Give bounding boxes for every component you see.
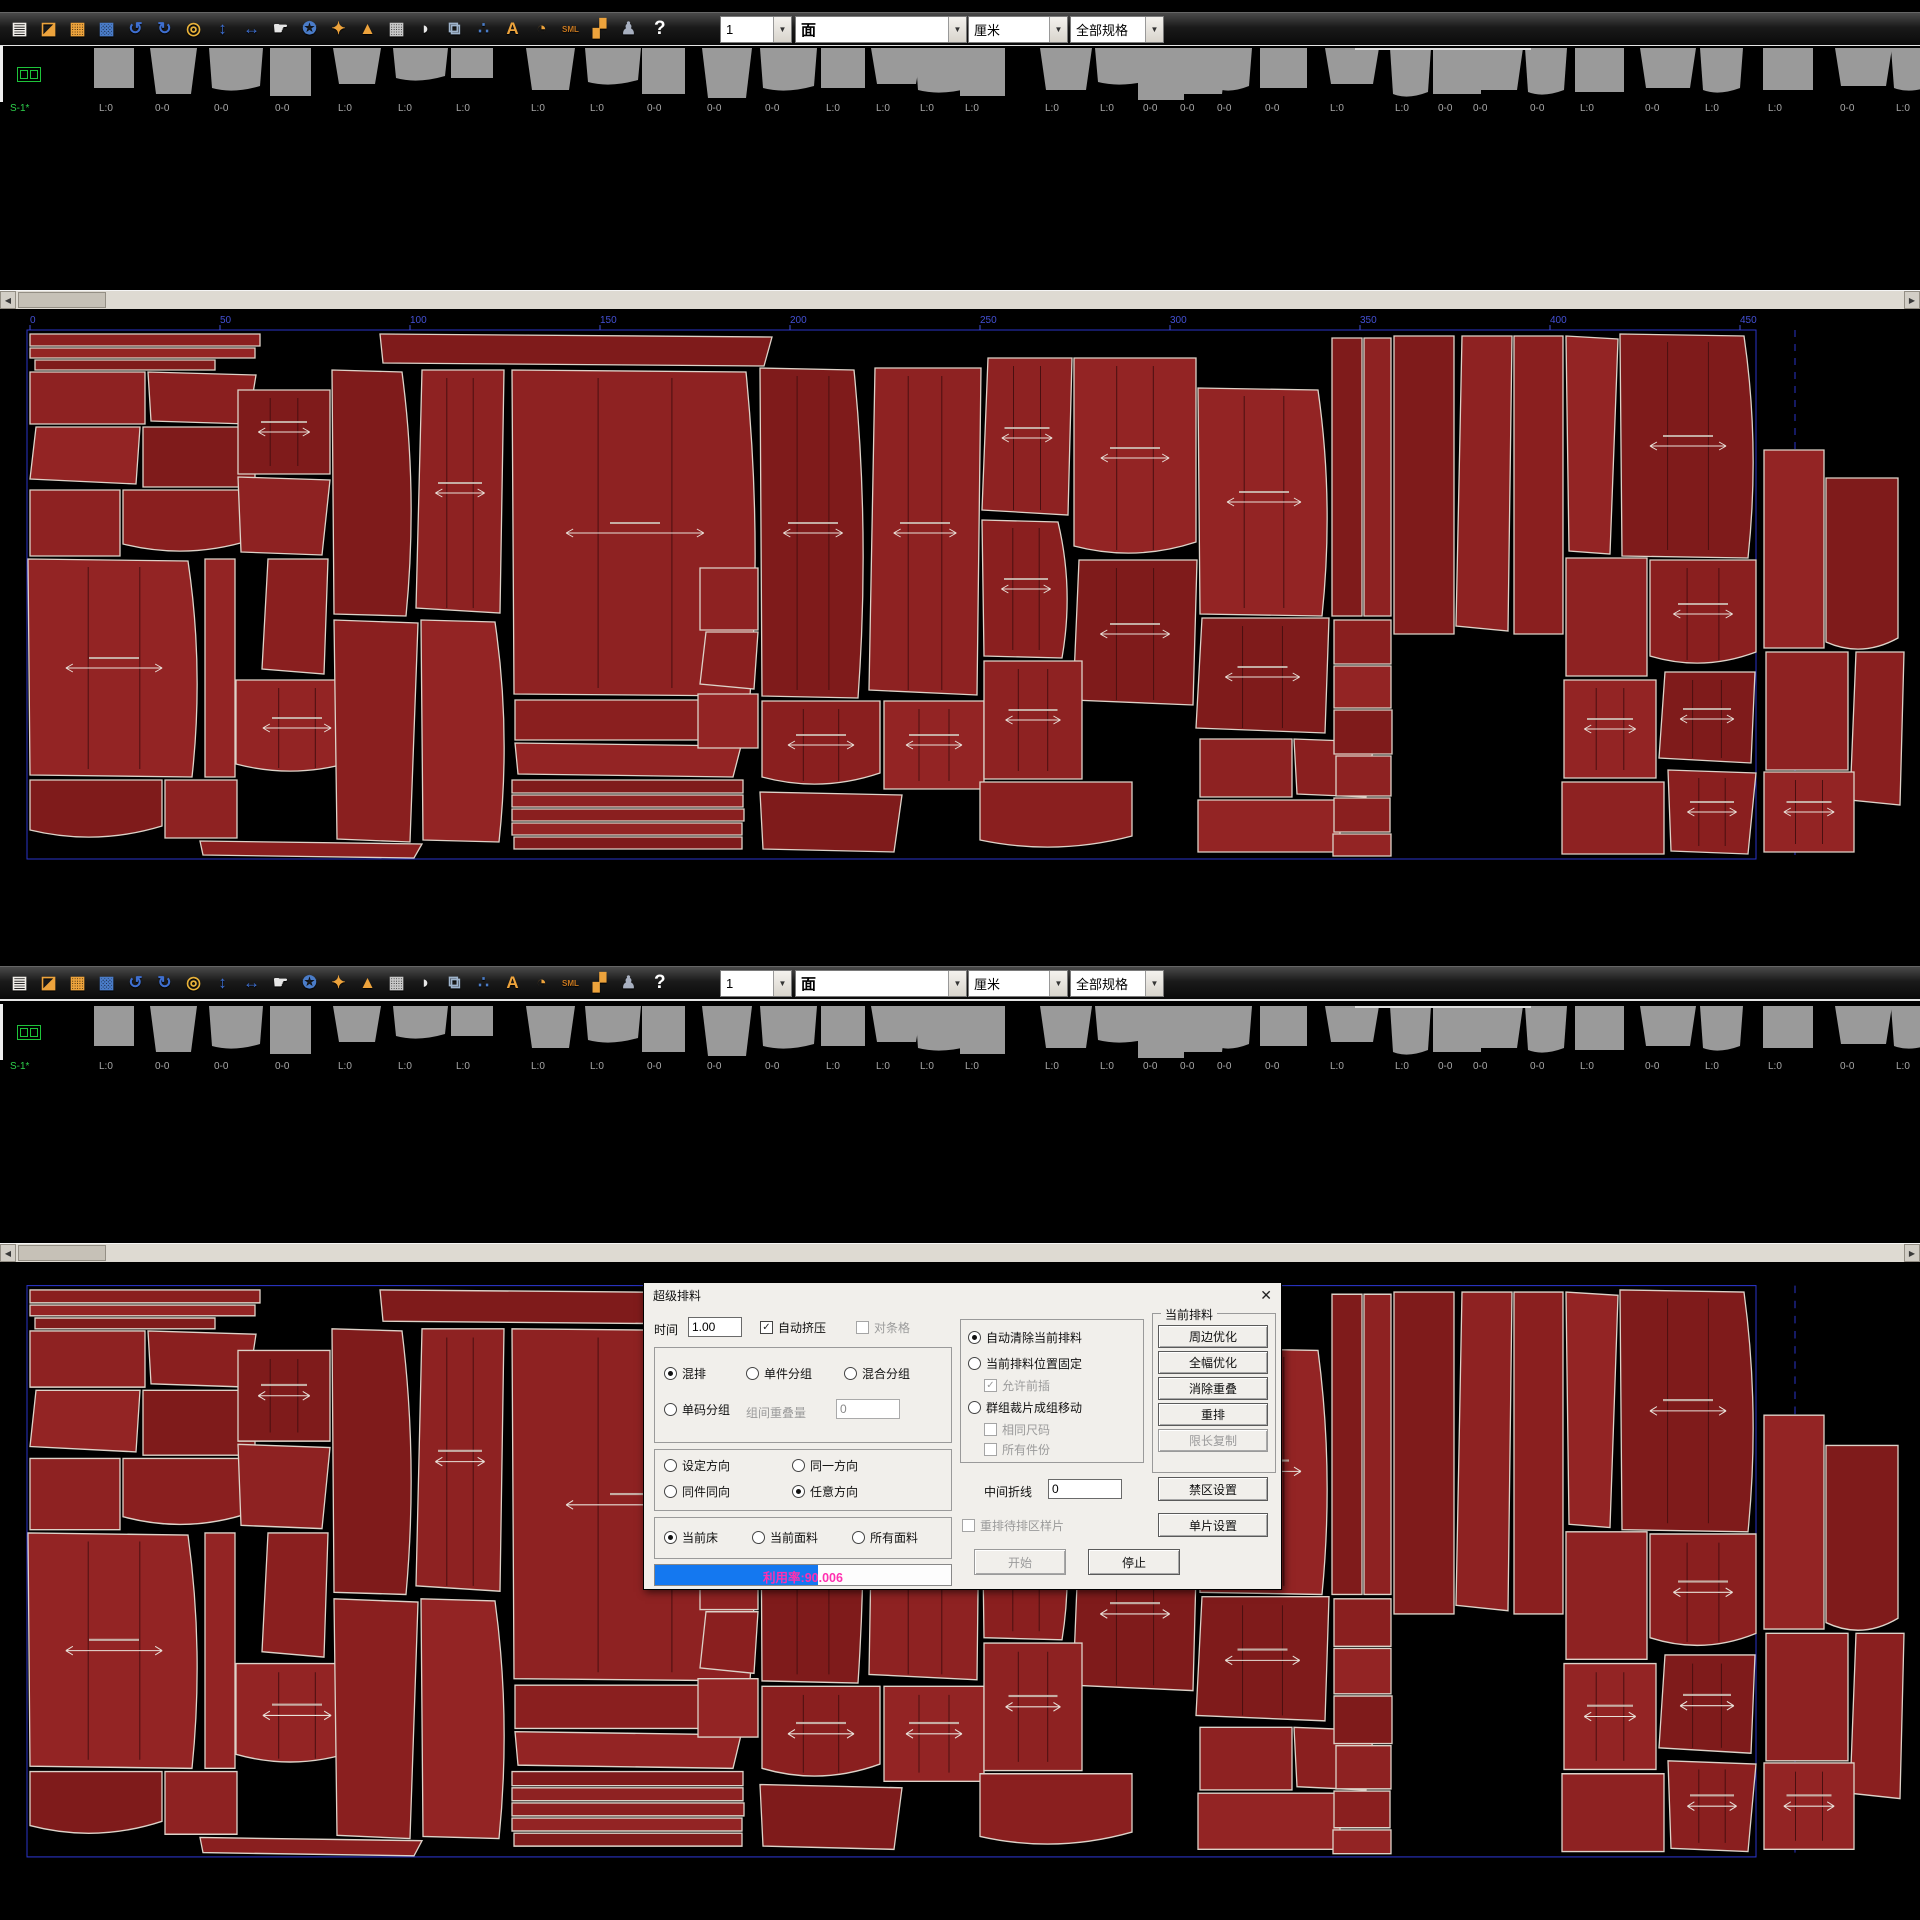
- fabric-combo[interactable]: 面 ▼: [795, 16, 967, 43]
- reel-icon[interactable]: ✪: [298, 17, 321, 41]
- reel-icon[interactable]: ✪: [298, 971, 321, 995]
- strip-piece[interactable]: [1390, 1006, 1431, 1055]
- pattern-piece[interactable]: [1764, 1415, 1824, 1629]
- ink-icon[interactable]: ◗: [414, 971, 437, 995]
- pattern-piece[interactable]: [1198, 800, 1340, 852]
- pattern-piece[interactable]: [1334, 1599, 1391, 1647]
- strip-piece[interactable]: [94, 48, 134, 88]
- pattern-piece[interactable]: [1566, 336, 1618, 554]
- current-fabric-label: 当前面料: [770, 1529, 818, 1546]
- pattern-piece[interactable]: [165, 1772, 237, 1835]
- pattern-piece[interactable]: [514, 1833, 742, 1846]
- pattern-piece[interactable]: [1334, 620, 1391, 664]
- pattern-piece[interactable]: [1332, 338, 1362, 616]
- pattern-piece[interactable]: [1364, 338, 1391, 616]
- strip-piece[interactable]: [1390, 48, 1431, 97]
- undo-icon[interactable]: ↺: [124, 17, 147, 41]
- full-optimize-button[interactable]: 全幅优化: [1158, 1351, 1268, 1374]
- pattern-piece[interactable]: [30, 427, 140, 484]
- copy-icon[interactable]: ⧉: [443, 971, 466, 995]
- pattern-piece[interactable]: [514, 837, 742, 849]
- strip-piece[interactable]: [333, 48, 381, 84]
- strip-piece[interactable]: [1468, 48, 1523, 90]
- fold-line-input[interactable]: [1048, 1479, 1122, 1499]
- pattern-piece[interactable]: [1074, 358, 1196, 553]
- pattern-piece[interactable]: [30, 780, 162, 837]
- new-document-icon[interactable]: ▤: [8, 971, 31, 995]
- set-direction-radio[interactable]: 设定方向: [664, 1457, 730, 1474]
- radio-selected-icon[interactable]: [664, 1367, 677, 1380]
- chevron-down-icon[interactable]: ▼: [773, 17, 791, 42]
- help-icon[interactable]: ?: [654, 972, 666, 994]
- close-icon[interactable]: ✕: [1260, 1287, 1272, 1304]
- radio-icon[interactable]: [792, 1459, 805, 1472]
- pattern-piece[interactable]: [1659, 672, 1755, 763]
- share-icon[interactable]: ∴: [472, 17, 495, 41]
- chevron-down-icon[interactable]: ▼: [948, 17, 966, 42]
- strip-piece[interactable]: [1325, 1006, 1379, 1042]
- pattern-piece[interactable]: [982, 358, 1072, 515]
- stop-button[interactable]: 停止: [1088, 1549, 1180, 1575]
- piece-annotation: [1587, 1705, 1633, 1707]
- strip-piece[interactable]: [1212, 48, 1252, 91]
- all-fabrics-radio[interactable]: 所有面料: [852, 1529, 918, 1546]
- strip-piece[interactable]: [1640, 1006, 1696, 1046]
- single-group-radio[interactable]: 单件分组: [746, 1365, 812, 1382]
- chevron-down-icon[interactable]: ▼: [1145, 17, 1163, 42]
- hand-icon[interactable]: ☛: [269, 971, 292, 995]
- piece-annotation: [438, 482, 482, 484]
- strip-label-row: S-1* L:00-00-00-0L:0L:0L:0L:0L:00-00-00-…: [0, 1061, 1920, 1075]
- piece-annotation: [1683, 708, 1731, 710]
- radio-selected-icon[interactable]: [664, 1531, 677, 1544]
- save-as-icon[interactable]: ▩: [95, 17, 118, 41]
- pattern-piece[interactable]: [1364, 1294, 1391, 1594]
- marker-icon[interactable]: ▦: [385, 17, 408, 41]
- unit-combo[interactable]: 厘米 ▼: [968, 970, 1068, 997]
- strip-piece[interactable]: [642, 48, 685, 94]
- user-icon[interactable]: ♟: [617, 17, 640, 41]
- group-icon[interactable]: ▞: [588, 971, 611, 995]
- strip-piece[interactable]: [1640, 48, 1696, 88]
- pattern-piece[interactable]: [1514, 336, 1563, 634]
- edge-optimize-button[interactable]: 周边优化: [1158, 1325, 1268, 1348]
- radio-selected-icon[interactable]: [968, 1331, 981, 1344]
- pattern-piece[interactable]: [760, 1785, 902, 1850]
- time-input[interactable]: [688, 1317, 742, 1337]
- pattern-piece[interactable]: [1850, 1633, 1904, 1798]
- marker-canvas-top[interactable]: 050100150200250300350400450: [0, 310, 1920, 862]
- current-fabric-radio[interactable]: 当前面料: [752, 1529, 818, 1546]
- strip-piece[interactable]: [871, 1006, 922, 1042]
- open-folder-icon[interactable]: ◪: [37, 17, 60, 41]
- pattern-piece[interactable]: [332, 1329, 411, 1595]
- radio-selected-icon[interactable]: [792, 1485, 805, 1498]
- pattern-piece[interactable]: [1200, 739, 1292, 797]
- limit-copy-button[interactable]: 限长复制: [1158, 1429, 1268, 1452]
- strip-piece[interactable]: [821, 48, 865, 88]
- strip-piece[interactable]: [94, 1006, 134, 1046]
- layer-combo[interactable]: 1 ▼: [720, 970, 792, 997]
- strip-piece[interactable]: [150, 1006, 197, 1052]
- strip-piece[interactable]: [393, 1006, 448, 1039]
- open-folder-icon[interactable]: ◪: [37, 971, 60, 995]
- strip-piece[interactable]: [1835, 1006, 1892, 1044]
- pattern-piece[interactable]: [238, 477, 330, 555]
- pattern-piece[interactable]: [416, 370, 504, 613]
- pattern-piece[interactable]: [700, 1612, 758, 1674]
- unit-combo[interactable]: 厘米 ▼: [968, 16, 1068, 43]
- redo-icon[interactable]: ↻: [153, 971, 176, 995]
- mixed-group-radio[interactable]: 混合分组: [844, 1365, 910, 1382]
- pattern-piece[interactable]: [1334, 710, 1392, 754]
- pattern-piece[interactable]: [512, 1788, 743, 1801]
- time-label: 时间: [654, 1321, 678, 1338]
- ruler-tick-label: 0: [30, 315, 36, 326]
- hand-icon[interactable]: ☛: [269, 17, 292, 41]
- layer-combo[interactable]: 1 ▼: [720, 16, 792, 43]
- pattern-piece[interactable]: [1073, 560, 1197, 705]
- pattern-piece[interactable]: [1336, 1746, 1391, 1789]
- pattern-piece[interactable]: [698, 694, 758, 748]
- pattern-piece[interactable]: [262, 559, 328, 674]
- strip-piece[interactable]: [642, 1006, 685, 1052]
- strip-piece[interactable]: [760, 1006, 817, 1049]
- pattern-piece[interactable]: [30, 490, 120, 556]
- chevron-down-icon[interactable]: ▼: [1049, 971, 1067, 996]
- scroll-left-icon[interactable]: ◀: [0, 291, 16, 309]
- pattern-piece[interactable]: [512, 1772, 743, 1786]
- strip-piece[interactable]: [1700, 1006, 1743, 1051]
- scrollbar-thumb[interactable]: [18, 292, 106, 308]
- chevron-down-icon[interactable]: ▼: [1049, 17, 1067, 42]
- pattern-piece[interactable]: [1332, 1294, 1362, 1594]
- pattern-piece[interactable]: [334, 620, 418, 842]
- nest-icon[interactable]: ✦: [327, 971, 350, 995]
- pattern-piece[interactable]: [332, 370, 411, 616]
- nest-icon[interactable]: ✦: [327, 17, 350, 41]
- pattern-piece[interactable]: [334, 1599, 418, 1839]
- dialog-titlebar[interactable]: 超级排料 ✕: [644, 1283, 1281, 1307]
- share-icon[interactable]: ∴: [472, 971, 495, 995]
- piece-count-label: 0-0: [155, 1061, 169, 1072]
- pattern-piece[interactable]: [512, 823, 742, 835]
- pattern-piece[interactable]: [1826, 478, 1898, 649]
- chevron-down-icon[interactable]: ▼: [1145, 971, 1163, 996]
- scroll-left-icon[interactable]: ◀: [0, 1244, 16, 1262]
- forbid-zone-button[interactable]: 禁区设置: [1158, 1477, 1268, 1501]
- group-move-radio[interactable]: 群组裁片成组移动: [968, 1399, 1082, 1416]
- pattern-piece[interactable]: [30, 1290, 260, 1303]
- strip-piece[interactable]: [1763, 48, 1813, 90]
- pattern-piece[interactable]: [1659, 1655, 1755, 1753]
- pattern-piece[interactable]: [1826, 1445, 1898, 1630]
- pattern-piece[interactable]: [200, 841, 422, 858]
- pattern-piece[interactable]: [1394, 336, 1454, 634]
- horizontal-scrollbar[interactable]: ◀ ▶: [0, 290, 1920, 309]
- radio-icon[interactable]: [844, 1367, 857, 1380]
- same-piece-direction-label: 同件同向: [682, 1483, 730, 1500]
- strip-piece[interactable]: [1325, 48, 1379, 84]
- pattern-piece[interactable]: [869, 368, 981, 695]
- strip-piece[interactable]: [1763, 1006, 1813, 1048]
- remove-overlap-button[interactable]: 消除重叠: [1158, 1377, 1268, 1400]
- piece-annotation: [438, 1450, 482, 1452]
- strip-piece[interactable]: [1835, 48, 1892, 86]
- piece-count-label: 0-0: [1473, 1061, 1487, 1072]
- horizontal-scrollbar[interactable]: ◀ ▶: [0, 1243, 1920, 1262]
- mix-radio[interactable]: 混排: [664, 1365, 706, 1382]
- sheet-grid-icon[interactable]: [17, 67, 41, 82]
- fit-vertical-icon[interactable]: ↕: [211, 971, 234, 995]
- pattern-piece[interactable]: [200, 1837, 422, 1855]
- pattern-piece[interactable]: [1394, 1292, 1454, 1614]
- strip-piece[interactable]: [526, 1006, 575, 1048]
- marker-icon[interactable]: ▦: [385, 971, 408, 995]
- strip-piece[interactable]: [1525, 1006, 1567, 1053]
- pattern-piece[interactable]: [1456, 1292, 1512, 1611]
- strip-rule-line: [1355, 1006, 1531, 1008]
- pattern-piece[interactable]: [30, 372, 145, 424]
- help-icon[interactable]: ?: [654, 18, 666, 40]
- radio-icon[interactable]: [664, 1485, 677, 1498]
- strip-piece[interactable]: [451, 48, 493, 78]
- pattern-piece[interactable]: [1200, 1727, 1292, 1790]
- chevron-down-icon[interactable]: ▼: [948, 971, 966, 996]
- auto-clear-radio[interactable]: 自动清除当前排料: [968, 1329, 1082, 1346]
- strip-piece[interactable]: [702, 48, 752, 98]
- strip-piece[interactable]: [1575, 1006, 1624, 1050]
- radio-icon[interactable]: [664, 1459, 677, 1472]
- chevron-down-icon[interactable]: ▼: [773, 971, 791, 996]
- pattern-piece[interactable]: [35, 360, 215, 370]
- pattern-piece[interactable]: [421, 1599, 504, 1839]
- fabric-combo[interactable]: 面 ▼: [795, 970, 967, 997]
- stripe-match-checkbox: 对条格: [856, 1319, 910, 1336]
- strip-piece[interactable]: [209, 48, 263, 91]
- strip-piece[interactable]: [1525, 48, 1567, 95]
- fixed-position-radio[interactable]: 当前排料位置固定: [968, 1355, 1082, 1372]
- group-icon[interactable]: ▞: [588, 17, 611, 41]
- strip-piece[interactable]: [1260, 1006, 1307, 1046]
- size-combo[interactable]: 全部规格 ▼: [1070, 970, 1164, 997]
- fit-horizontal-icon[interactable]: ↔: [240, 17, 263, 41]
- same-direction-radio[interactable]: 同一方向: [792, 1457, 858, 1474]
- pattern-piece[interactable]: [1196, 1597, 1329, 1721]
- zoom-icon[interactable]: ◎: [182, 971, 205, 995]
- piece-count-label: L:0: [590, 103, 604, 114]
- radio-icon[interactable]: [852, 1531, 865, 1544]
- strip-piece[interactable]: [270, 1006, 311, 1054]
- piece-count-label: L:0: [99, 1061, 113, 1072]
- pattern-piece[interactable]: [1334, 798, 1390, 832]
- pattern-piece[interactable]: [1456, 336, 1512, 631]
- strip-piece[interactable]: [333, 1006, 381, 1042]
- pattern-piece[interactable]: [1562, 782, 1664, 854]
- pattern-piece[interactable]: [1562, 1774, 1664, 1852]
- strip-piece[interactable]: [1212, 1006, 1252, 1049]
- same-piece-direction-radio[interactable]: 同件同向: [664, 1483, 730, 1500]
- zoom-icon[interactable]: ◎: [182, 17, 205, 41]
- strip-piece[interactable]: [1891, 1006, 1920, 1049]
- strip-piece[interactable]: [585, 48, 641, 85]
- pattern-piece[interactable]: [1333, 834, 1391, 856]
- pattern-piece[interactable]: [1850, 652, 1904, 805]
- pattern-piece[interactable]: [1764, 450, 1824, 648]
- piece-count-label: 0-0: [1530, 1061, 1544, 1072]
- single-size-radio[interactable]: 单码分组: [664, 1401, 730, 1418]
- strip-piece[interactable]: [1700, 48, 1743, 93]
- export-icon[interactable]: ▲: [356, 971, 379, 995]
- text-icon[interactable]: A: [501, 971, 524, 995]
- strip-piece[interactable]: [150, 48, 197, 94]
- piece-setting-button[interactable]: 单片设置: [1158, 1513, 1268, 1537]
- pattern-piece[interactable]: [35, 1318, 215, 1329]
- strip-piece[interactable]: [702, 1006, 752, 1056]
- user-icon[interactable]: ♟: [617, 971, 640, 995]
- pie-chart-icon[interactable]: ◔: [530, 17, 553, 41]
- pattern-piece[interactable]: [205, 559, 235, 777]
- checkbox-checked-icon[interactable]: ✓: [760, 1321, 773, 1334]
- pattern-piece[interactable]: [762, 701, 880, 784]
- pattern-piece[interactable]: [760, 792, 902, 852]
- pattern-piece[interactable]: [421, 620, 504, 842]
- strip-piece[interactable]: [393, 48, 448, 81]
- strip-piece[interactable]: [960, 48, 1005, 96]
- piece-count-label: L:0: [1395, 103, 1409, 114]
- export-icon[interactable]: ▲: [356, 17, 379, 41]
- pattern-piece[interactable]: [700, 632, 758, 689]
- radio-icon[interactable]: [752, 1531, 765, 1544]
- redo-icon[interactable]: ↻: [153, 17, 176, 41]
- pattern-piece[interactable]: [762, 1686, 880, 1776]
- pattern-piece[interactable]: [1650, 1534, 1756, 1645]
- pattern-piece[interactable]: [1334, 666, 1391, 708]
- strip-piece[interactable]: [526, 48, 575, 90]
- fit-horizontal-icon[interactable]: ↔: [240, 971, 263, 995]
- pattern-piece[interactable]: [262, 1533, 328, 1657]
- size-combo[interactable]: 全部规格 ▼: [1070, 16, 1164, 43]
- pattern-piece[interactable]: [1766, 652, 1848, 770]
- undo-icon[interactable]: ↺: [124, 971, 147, 995]
- fit-vertical-icon[interactable]: ↕: [211, 17, 234, 41]
- pattern-piece[interactable]: [1566, 1532, 1647, 1659]
- current-bed-radio[interactable]: 当前床: [664, 1529, 718, 1546]
- pattern-piece[interactable]: [1334, 1696, 1392, 1744]
- pattern-piece[interactable]: [1566, 558, 1647, 676]
- pattern-piece[interactable]: [512, 1803, 744, 1816]
- pattern-piece[interactable]: [30, 1390, 140, 1452]
- strip-piece[interactable]: [760, 48, 817, 91]
- sheet-grid-icon[interactable]: [17, 1025, 41, 1040]
- pattern-piece[interactable]: [980, 1774, 1132, 1844]
- pattern-piece[interactable]: [123, 490, 251, 551]
- pattern-piece[interactable]: [1198, 1793, 1340, 1849]
- copy-icon[interactable]: ⧉: [443, 17, 466, 41]
- pattern-piece[interactable]: [1514, 1292, 1563, 1614]
- strip-piece[interactable]: [960, 1006, 1005, 1054]
- save-icon[interactable]: ▦: [66, 17, 89, 41]
- ink-icon[interactable]: ◗: [414, 17, 437, 41]
- pattern-piece[interactable]: [416, 1329, 504, 1591]
- strip-piece[interactable]: [585, 1006, 641, 1043]
- pattern-piece[interactable]: [512, 795, 743, 807]
- pattern-piece[interactable]: [30, 1458, 120, 1529]
- strip-piece[interactable]: [821, 1006, 865, 1046]
- pattern-piece[interactable]: [30, 334, 260, 346]
- save-as-icon[interactable]: ▩: [95, 971, 118, 995]
- pattern-piece[interactable]: [123, 1458, 251, 1524]
- pattern-piece[interactable]: [30, 1305, 255, 1316]
- pattern-piece[interactable]: [205, 1533, 235, 1768]
- pattern-piece[interactable]: [1196, 618, 1329, 733]
- pattern-piece[interactable]: [700, 568, 758, 630]
- pattern-piece[interactable]: [1566, 1292, 1618, 1527]
- checkbox-icon: [856, 1321, 869, 1334]
- piece-count-label: L:0: [1705, 103, 1719, 114]
- pattern-piece[interactable]: [980, 782, 1132, 847]
- pie-chart-icon[interactable]: ◔: [530, 971, 553, 995]
- save-icon[interactable]: ▦: [66, 971, 89, 995]
- strip-piece[interactable]: [871, 48, 922, 84]
- pattern-piece[interactable]: [30, 1772, 162, 1834]
- scroll-right-icon[interactable]: ▶: [1904, 1244, 1920, 1262]
- strip-piece[interactable]: [451, 1006, 493, 1036]
- any-direction-radio[interactable]: 任意方向: [792, 1483, 858, 1500]
- pattern-piece[interactable]: [1333, 1830, 1391, 1854]
- auto-squeeze-checkbox[interactable]: ✓ 自动挤压: [760, 1319, 826, 1336]
- pattern-piece[interactable]: [512, 780, 743, 793]
- strip-piece[interactable]: [1040, 48, 1092, 90]
- strip-piece[interactable]: [209, 1006, 263, 1049]
- sml-sizes-icon[interactable]: SML: [559, 17, 582, 41]
- pattern-piece[interactable]: [698, 1679, 758, 1737]
- strip-piece[interactable]: [1468, 1006, 1523, 1048]
- pattern-piece[interactable]: [1334, 1648, 1391, 1693]
- scrollbar-thumb[interactable]: [18, 1245, 106, 1261]
- scroll-right-icon[interactable]: ▶: [1904, 291, 1920, 309]
- pattern-piece[interactable]: [512, 1818, 742, 1831]
- pattern-piece[interactable]: [512, 809, 744, 821]
- pattern-piece[interactable]: [30, 348, 255, 358]
- pattern-piece[interactable]: [1334, 1791, 1390, 1828]
- radio-icon[interactable]: [664, 1403, 677, 1416]
- strip-piece[interactable]: [1040, 1006, 1092, 1048]
- pattern-piece[interactable]: [30, 1331, 145, 1387]
- new-document-icon[interactable]: ▤: [8, 17, 31, 41]
- start-button[interactable]: 开始: [974, 1549, 1066, 1575]
- pattern-piece[interactable]: [1336, 756, 1391, 796]
- radio-icon[interactable]: [968, 1401, 981, 1414]
- radio-icon[interactable]: [968, 1357, 981, 1370]
- size-combo-value: 全部规格: [1071, 971, 1145, 996]
- piece-count-label: L:0: [531, 1061, 545, 1072]
- sml-sizes-icon[interactable]: SML: [559, 971, 582, 995]
- radio-icon[interactable]: [746, 1367, 759, 1380]
- strip-piece[interactable]: [1891, 48, 1920, 91]
- pattern-piece[interactable]: [238, 1444, 330, 1528]
- strip-piece[interactable]: [270, 48, 311, 96]
- pattern-piece[interactable]: [1766, 1633, 1848, 1760]
- strip-piece[interactable]: [1260, 48, 1307, 88]
- strip-piece[interactable]: [1575, 48, 1624, 92]
- piece-annotation: [909, 734, 959, 736]
- text-icon[interactable]: A: [501, 17, 524, 41]
- renest-button[interactable]: 重排: [1158, 1403, 1268, 1426]
- pattern-piece[interactable]: [165, 780, 237, 838]
- pattern-piece[interactable]: [1650, 560, 1756, 663]
- pattern-piece[interactable]: [380, 334, 772, 366]
